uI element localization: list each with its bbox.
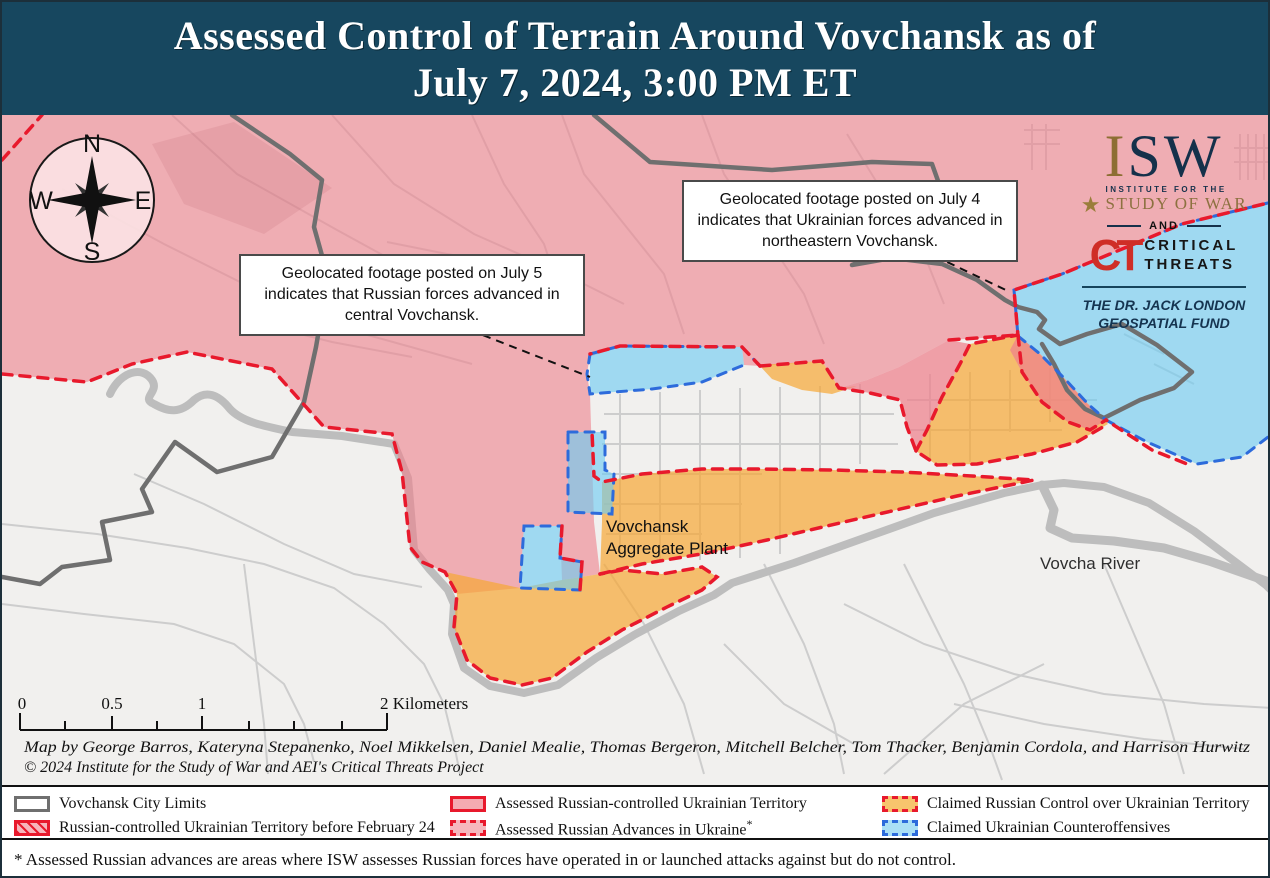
russian-advances-swatch xyxy=(450,820,486,836)
scale-label-2km: 2 Kilometers xyxy=(380,694,468,713)
study-of-war-label: STUDY OF WAR xyxy=(1105,194,1247,214)
annotation-july5-text: Geolocated footage posted on July 5 indi… xyxy=(264,265,559,324)
institute-for-the-label: INSTITUTE FOR THE xyxy=(1105,185,1247,194)
annotation-july4: Geolocated footage posted on July 4 indi… xyxy=(682,180,1018,262)
annotation-july4-text: Geolocated footage posted on July 4 indi… xyxy=(697,191,1002,250)
advances-asterisk: * xyxy=(747,817,753,831)
map-canvas: N E S W Vovchansk Aggregate Plant Vovcha… xyxy=(2,115,1270,785)
fund-label-line1: THE DR. JACK LONDON xyxy=(1074,296,1254,314)
legend-item-city-limits: Vovchansk City Limits xyxy=(14,793,206,815)
compass-e-label: E xyxy=(135,187,152,215)
fund-divider xyxy=(1082,286,1246,288)
legend-label: Assessed Russian-controlled Ukrainian Te… xyxy=(495,795,807,813)
isw-wordmark: IISWSW xyxy=(1074,129,1254,183)
compass-n-label: N xyxy=(83,130,101,158)
and-label: AND xyxy=(1149,220,1179,232)
critical-threats-ct-icon: CT xyxy=(1090,236,1139,276)
and-rule-left xyxy=(1107,225,1141,227)
page-title-line1: Assessed Control of Terrain Around Vovch… xyxy=(2,2,1268,59)
legend-item-ukrainian-counteroffensives: Claimed Ukrainian Counteroffensives xyxy=(882,817,1170,839)
vovcha-river-label: Vovcha River xyxy=(1040,554,1140,573)
aggregate-plant-label-line1: Vovchansk xyxy=(606,517,689,536)
isw-star-icon: ★ xyxy=(1081,196,1101,214)
legend-label: Russian-controlled Ukrainian Territory b… xyxy=(59,819,435,837)
footnote-text: * Assessed Russian advances are areas wh… xyxy=(2,850,956,870)
annotation-july5: Geolocated footage posted on July 5 indi… xyxy=(239,254,585,336)
legend-label: Vovchansk City Limits xyxy=(59,795,206,813)
credits-line2: © 2024 Institute for the Study of War an… xyxy=(24,759,484,776)
legend-item-pre-feb24: Russian-controlled Ukrainian Territory b… xyxy=(14,817,435,839)
legend-item-russian-controlled: Assessed Russian-controlled Ukrainian Te… xyxy=(450,793,807,815)
and-rule-right xyxy=(1187,225,1221,227)
footnote-band: * Assessed Russian advances are areas wh… xyxy=(2,840,1268,878)
pre-feb24-swatch xyxy=(14,820,50,836)
isw-gold-i: I xyxy=(1105,123,1128,189)
credits-line1: Map by George Barros, Kateryna Stepanenk… xyxy=(23,739,1251,756)
title-band: Assessed Control of Terrain Around Vovch… xyxy=(2,2,1268,115)
isw-ct-logo: IISWSW ★ INSTITUTE FOR THE STUDY OF WAR … xyxy=(1074,129,1254,332)
threats-label: THREATS xyxy=(1144,256,1238,275)
legend-label: Claimed Ukrainian Counteroffensives xyxy=(927,819,1170,837)
fund-label-line2: GEOSPATIAL FUND xyxy=(1074,314,1254,332)
aggregate-plant-label-line2: Aggregate Plant xyxy=(606,539,728,558)
scale-label-05: 0.5 xyxy=(101,694,122,713)
legend-item-russian-advances: Assessed Russian Advances in Ukraine* xyxy=(450,817,753,839)
city-limits-swatch xyxy=(14,796,50,812)
russian-controlled-swatch xyxy=(450,796,486,812)
legend-label: Assessed Russian Advances in Ukraine* xyxy=(495,817,753,839)
scale-label-0: 0 xyxy=(18,694,27,713)
legend-band: Vovchansk City Limits Russian-controlled… xyxy=(2,785,1268,840)
claimed-russian-swatch xyxy=(882,796,918,812)
compass-w-label: W xyxy=(29,187,53,215)
isw-map-page: Assessed Control of Terrain Around Vovch… xyxy=(0,0,1270,878)
scale-label-1: 1 xyxy=(198,694,207,713)
compass-s-label: S xyxy=(84,238,101,266)
legend-item-claimed-russian: Claimed Russian Control over Ukrainian T… xyxy=(882,793,1250,815)
ukrainian-counteroffensives-swatch xyxy=(882,820,918,836)
legend-label: Claimed Russian Control over Ukrainian T… xyxy=(927,795,1250,813)
critical-label: CRITICAL xyxy=(1144,237,1238,256)
page-title-line2: July 7, 2024, 3:00 PM ET xyxy=(2,59,1268,106)
